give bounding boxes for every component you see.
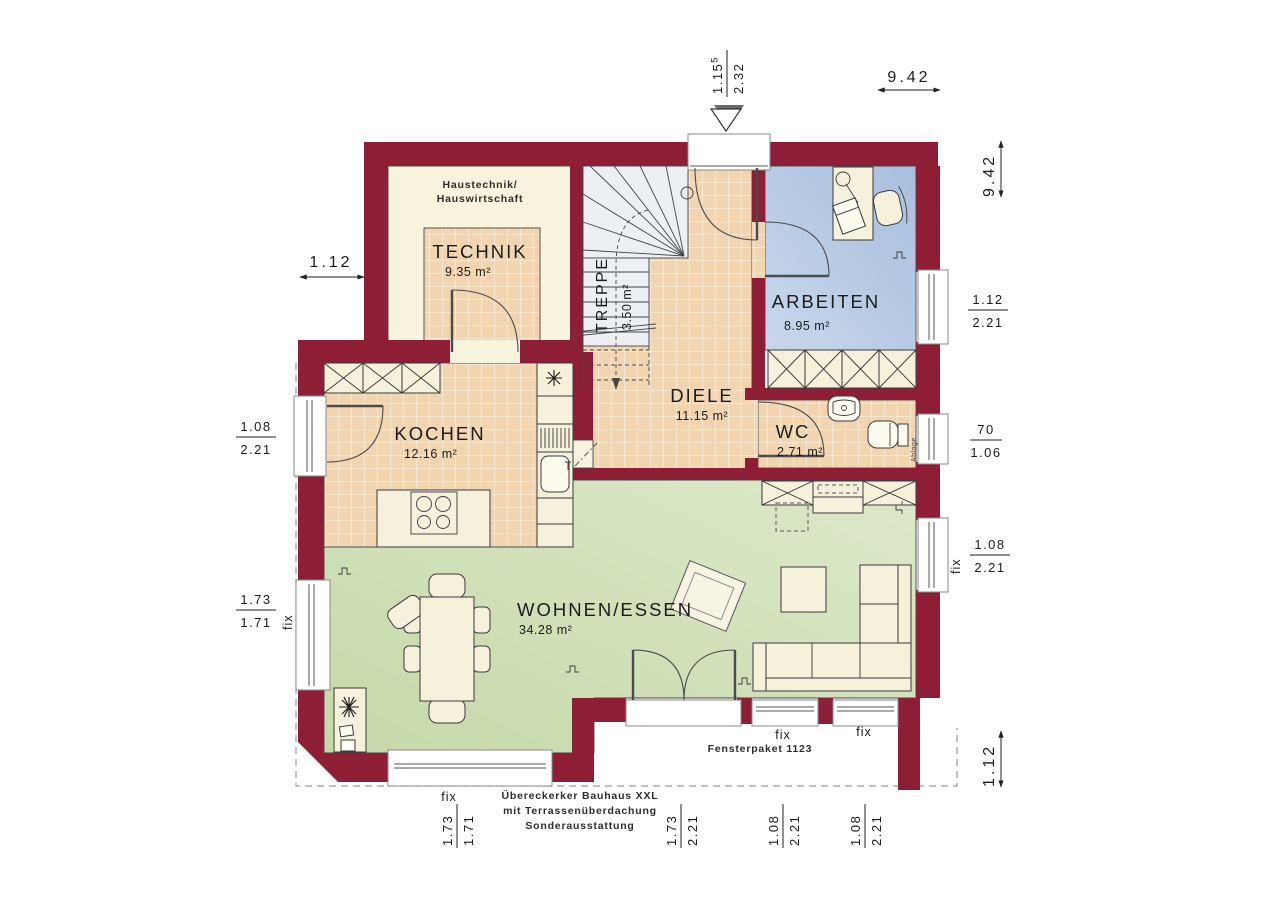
svg-text:2.21: 2.21 — [787, 815, 802, 846]
dim-wohnen-left-window: 1.73 1.71 fix — [236, 592, 295, 630]
dim-building-width: 9.42 — [878, 69, 940, 90]
svg-text:fix: fix — [949, 559, 963, 575]
svg-text:2.21: 2.21 — [972, 315, 1003, 330]
svg-text:1.12: 1.12 — [972, 292, 1003, 307]
svg-text:1.08: 1.08 — [240, 419, 271, 434]
svg-text:1.71: 1.71 — [461, 815, 476, 846]
svg-text:mit Terrassenüberdachung: mit Terrassenüberdachung — [503, 805, 657, 817]
svg-text:70: 70 — [977, 422, 994, 437]
window-bottom-fix2 — [833, 700, 898, 726]
kitchen-counter — [537, 363, 573, 547]
dim-building-depth: 9.42 — [981, 141, 1001, 197]
wc-door-opening — [745, 400, 758, 458]
svg-text:1.08: 1.08 — [766, 815, 781, 846]
wohnen-label: WOHNEN/ESSEN — [517, 599, 693, 620]
svg-text:fix: fix — [775, 728, 791, 742]
technik-note-2: Hauswirtschaft — [437, 193, 523, 205]
wc-toilet — [868, 421, 908, 448]
svg-text:fix: fix — [856, 725, 872, 739]
svg-text:Sonderausstattung: Sonderausstattung — [525, 820, 634, 832]
plant-shelf — [334, 688, 366, 752]
technik-note-1: Haustechnik/ — [443, 179, 518, 191]
svg-text:fix: fix — [281, 615, 295, 631]
wc-label: WC — [776, 421, 811, 442]
window-wohnen-left — [296, 580, 330, 690]
kitchen-island — [377, 490, 490, 547]
svg-text:2.21: 2.21 — [974, 560, 1005, 575]
wc-area: 2.71 m² — [777, 445, 823, 459]
technik-area: 9.35 m² — [445, 265, 491, 279]
kochen-label: KOCHEN — [394, 423, 485, 444]
svg-text:1.06: 1.06 — [970, 445, 1001, 460]
svg-text:2.21: 2.21 — [685, 815, 700, 846]
wc-basin — [828, 396, 860, 421]
technik-door-opening — [450, 340, 520, 363]
window-bottom-fix1 — [752, 700, 818, 726]
arbeiten-label: ARBEITEN — [772, 291, 881, 312]
svg-text:1.73: 1.73 — [240, 592, 271, 607]
wardrobe-kochen — [324, 363, 440, 393]
dim-arbeiten-window: 1.12 2.21 — [968, 292, 1008, 330]
kitchen-sink — [541, 456, 569, 492]
svg-text:1.73: 1.73 — [664, 815, 679, 846]
entrance-width-sup: 5 — [710, 56, 720, 63]
dim-kochen-window: 1.08 2.21 — [236, 419, 276, 457]
wohnen-area: 34.28 m² — [519, 623, 572, 637]
svg-text:9.42: 9.42 — [887, 69, 930, 86]
plant — [339, 697, 359, 717]
svg-text:2.21: 2.21 — [240, 442, 271, 457]
window-wohnen-bottom — [388, 750, 552, 786]
floorplan-page: TREPPE 3.50 m² — [0, 0, 1280, 906]
dim-bottom-window3: fix 1.08 2.21 — [848, 725, 884, 848]
kitchen-niche — [573, 440, 597, 468]
dim-wc-window: 70 1.06 — [970, 422, 1002, 460]
dim-entrance: 1.155 2.32 — [710, 50, 747, 97]
floorplan-drawing: TREPPE 3.50 m² — [0, 0, 1280, 906]
entrance-marker — [711, 105, 744, 131]
svg-text:2.21: 2.21 — [869, 815, 884, 846]
note-window-package: Fensterpaket 1123 — [708, 743, 813, 755]
dining-table — [420, 597, 474, 701]
svg-text:1.08: 1.08 — [848, 815, 863, 846]
dim-left-offset: 1.12 — [300, 254, 364, 277]
coffee-table — [781, 567, 826, 612]
terrace-door-sill — [626, 700, 741, 726]
svg-text:9.42: 9.42 — [981, 154, 998, 197]
svg-text:1.12: 1.12 — [309, 254, 352, 271]
entrance-height: 2.32 — [731, 63, 746, 94]
window-arbeiten-right — [918, 270, 948, 344]
boiler-symbol — [546, 370, 562, 386]
dim-right-offset: 1.12 — [981, 731, 1001, 787]
svg-text:1.12: 1.12 — [981, 744, 998, 787]
entrance-width: 1.15 — [710, 63, 725, 94]
svg-text:fix: fix — [441, 790, 457, 804]
wc-shelf-label: Ablage — [911, 437, 918, 462]
note-bottom: Übereckerker Bauhaus XXL mit Terrassenüb… — [502, 789, 659, 832]
arbeiten-door-opening — [752, 222, 765, 278]
svg-text:1.08: 1.08 — [974, 537, 1005, 552]
svg-text:1.73: 1.73 — [440, 815, 455, 846]
treppe-label: TREPPE — [594, 257, 611, 333]
desk — [833, 167, 873, 240]
arbeiten-area: 8.95 m² — [784, 319, 830, 333]
dining-chair — [429, 699, 465, 723]
dim-terrace-door: 1.73 2.21 — [664, 804, 700, 848]
window-wohnen-right — [918, 518, 948, 592]
svg-text:1.155: 1.155 — [710, 56, 726, 94]
dim-bottom-window1: fix 1.73 1.71 — [440, 790, 476, 848]
svg-text:Übereckerker Bauhaus XXL: Übereckerker Bauhaus XXL — [502, 789, 659, 802]
entrance-opening — [688, 134, 770, 170]
dim-wohnen-right-window: fix 1.08 2.21 — [949, 537, 1010, 575]
diele-area: 11.15 m² — [676, 409, 728, 423]
wardrobe-arbeiten — [768, 350, 916, 388]
svg-text:1.71: 1.71 — [240, 615, 271, 630]
kochen-area: 12.16 m² — [404, 447, 457, 461]
dining-chair — [429, 574, 465, 598]
window-kochen-left — [294, 396, 326, 476]
window-wc-right — [918, 414, 948, 464]
treppe-area: 3.50 m² — [620, 284, 634, 330]
diele-label: DIELE — [670, 385, 733, 406]
technik-label: TECHNIK — [432, 241, 527, 262]
